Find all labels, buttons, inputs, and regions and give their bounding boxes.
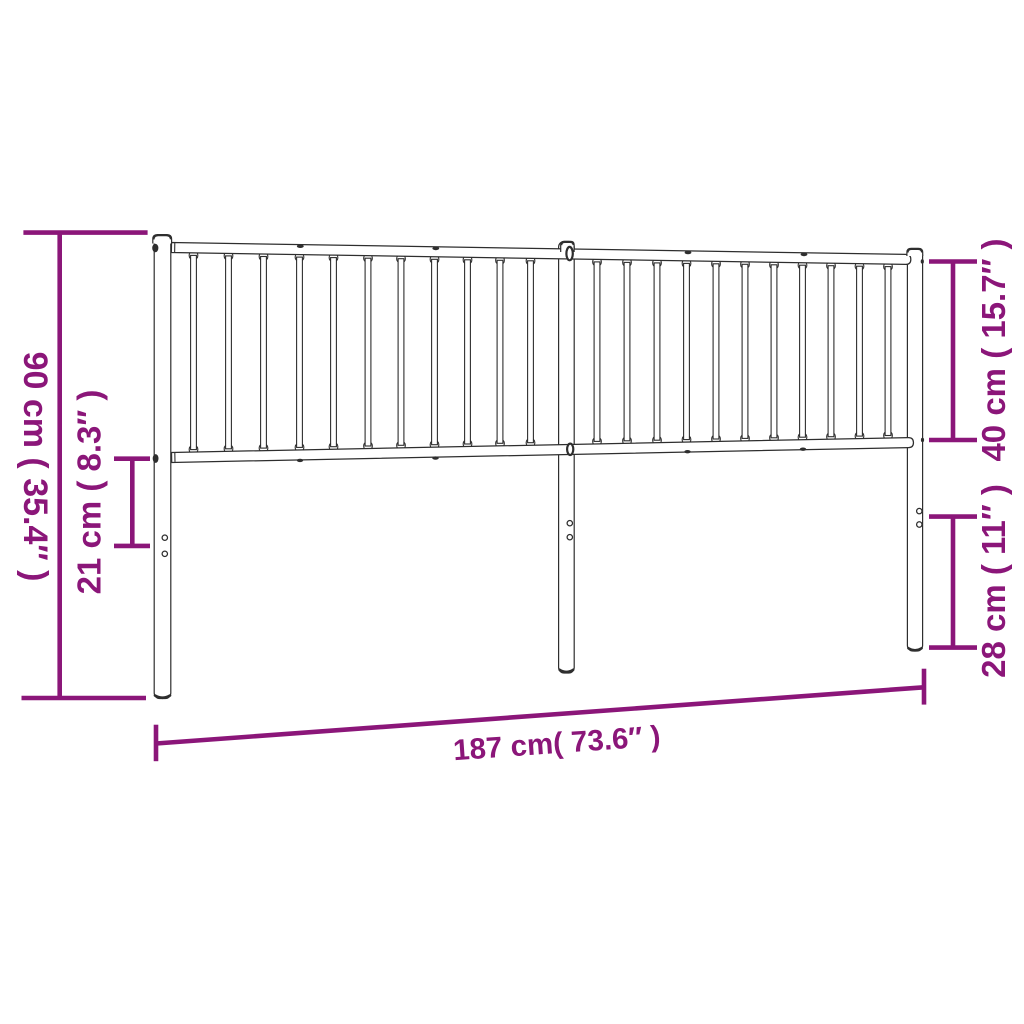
svg-text:40 cm ( 15.7″ ): 40 cm ( 15.7″ ) [975,238,1012,461]
svg-text:28 cm ( 11″ ): 28 cm ( 11″ ) [975,484,1012,678]
svg-text:21 cm ( 8.3″ ): 21 cm ( 8.3″ ) [71,390,108,595]
svg-text:90 cm ( 35.4″ ): 90 cm ( 35.4″ ) [16,352,54,582]
